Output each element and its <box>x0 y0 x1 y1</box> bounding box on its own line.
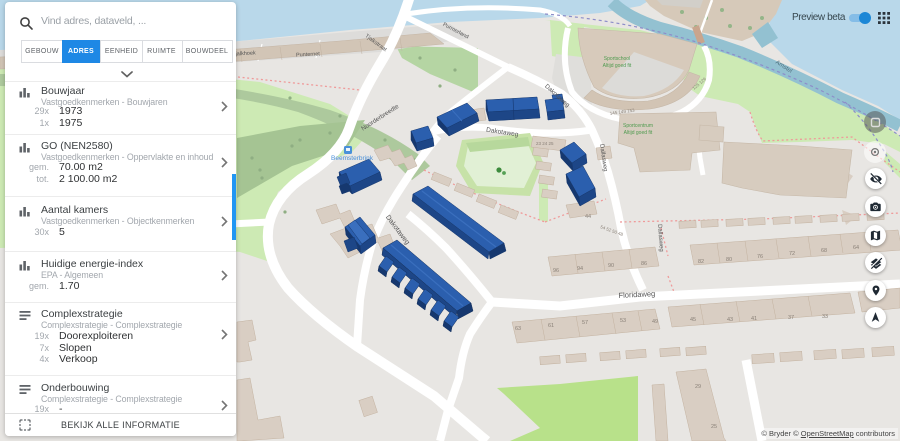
svg-text:90: 90 <box>608 263 614 269</box>
svg-text:86: 86 <box>641 261 647 267</box>
svg-text:45: 45 <box>690 317 696 323</box>
svg-text:41: 41 <box>751 316 757 322</box>
svg-text:49: 49 <box>652 319 658 325</box>
svg-text:33: 33 <box>822 314 828 320</box>
svg-text:Altijd goed fit: Altijd goed fit <box>603 63 632 69</box>
svg-text:Sportcentrum: Sportcentrum <box>623 123 653 129</box>
svg-text:Altijd goed fit: Altijd goed fit <box>624 130 653 136</box>
svg-text:82: 82 <box>698 259 704 265</box>
svg-text:76: 76 <box>757 254 763 260</box>
svg-text:64: 64 <box>853 245 859 251</box>
svg-text:37: 37 <box>788 315 794 321</box>
svg-text:23 24 25: 23 24 25 <box>536 141 554 146</box>
svg-text:57: 57 <box>582 320 588 326</box>
svg-text:25: 25 <box>711 424 717 430</box>
svg-text:43: 43 <box>727 317 733 323</box>
svg-text:Punternet: Punternet <box>296 51 321 58</box>
svg-text:63: 63 <box>515 326 521 332</box>
svg-text:Floridaweg: Floridaweg <box>618 289 655 300</box>
svg-text:29: 29 <box>695 384 701 390</box>
svg-text:44: 44 <box>585 214 591 220</box>
svg-text:Sportschool: Sportschool <box>604 56 630 62</box>
svg-text:94: 94 <box>577 266 583 272</box>
svg-text:53: 53 <box>620 318 626 324</box>
svg-text:61: 61 <box>548 323 554 329</box>
svg-text:96: 96 <box>553 268 559 274</box>
svg-text:Beemsterbrink: Beemsterbrink <box>331 155 374 162</box>
svg-text:72: 72 <box>789 251 795 257</box>
svg-text:68: 68 <box>821 248 827 254</box>
svg-text:80: 80 <box>726 257 732 263</box>
